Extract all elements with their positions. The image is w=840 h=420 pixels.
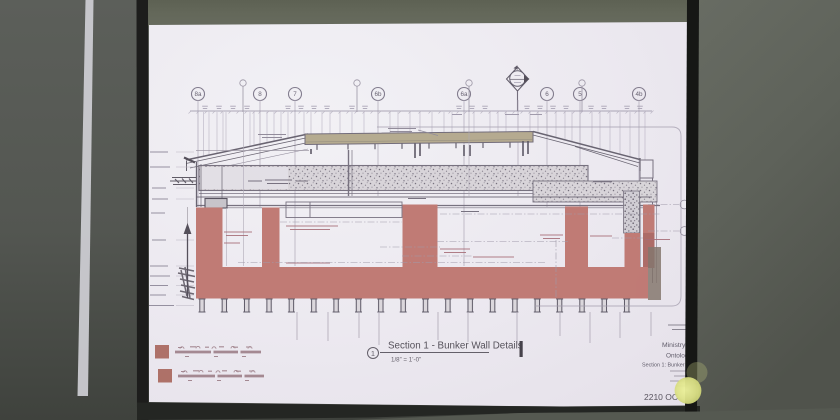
svg-text:6b: 6b bbox=[374, 91, 382, 98]
svg-text:1: 1 bbox=[371, 349, 375, 358]
svg-text:2210 OC: 2210 OC bbox=[644, 392, 678, 402]
svg-text:8a: 8a bbox=[194, 91, 202, 98]
svg-text:1/8” = 1’-0”: 1/8” = 1’-0” bbox=[391, 357, 421, 364]
svg-text:7: 7 bbox=[293, 91, 297, 98]
svg-text:6: 6 bbox=[545, 91, 549, 98]
svg-text:4b: 4b bbox=[635, 91, 643, 98]
svg-text:6a: 6a bbox=[460, 91, 468, 98]
svg-text:8: 8 bbox=[258, 91, 262, 98]
svg-text:Section 1 - Bunker Wall Detail: Section 1 - Bunker Wall Details bbox=[388, 341, 523, 352]
